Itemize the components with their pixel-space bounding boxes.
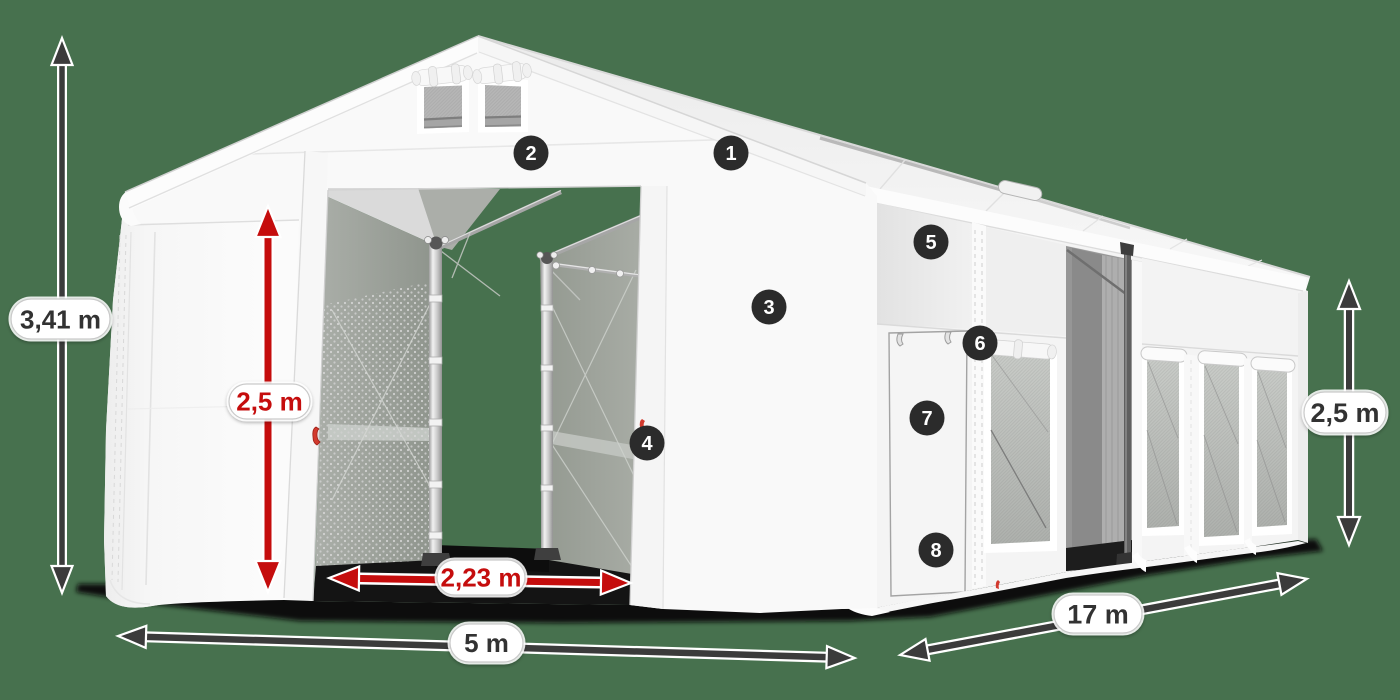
svg-text:5: 5 [925, 232, 936, 254]
svg-text:7: 7 [921, 408, 932, 430]
svg-text:4: 4 [641, 433, 653, 455]
svg-text:17 m: 17 m [1067, 600, 1129, 630]
svg-text:2,23 m: 2,23 m [441, 563, 522, 593]
svg-text:3,41 m: 3,41 m [20, 305, 101, 335]
svg-text:5 m: 5 m [464, 628, 509, 658]
svg-text:8: 8 [930, 540, 941, 562]
svg-text:1: 1 [725, 143, 736, 165]
svg-text:2: 2 [525, 143, 536, 165]
svg-text:2,5 m: 2,5 m [1310, 398, 1379, 428]
svg-text:6: 6 [974, 333, 985, 355]
svg-text:3: 3 [763, 297, 774, 319]
svg-text:2,5 m: 2,5 m [236, 387, 303, 417]
